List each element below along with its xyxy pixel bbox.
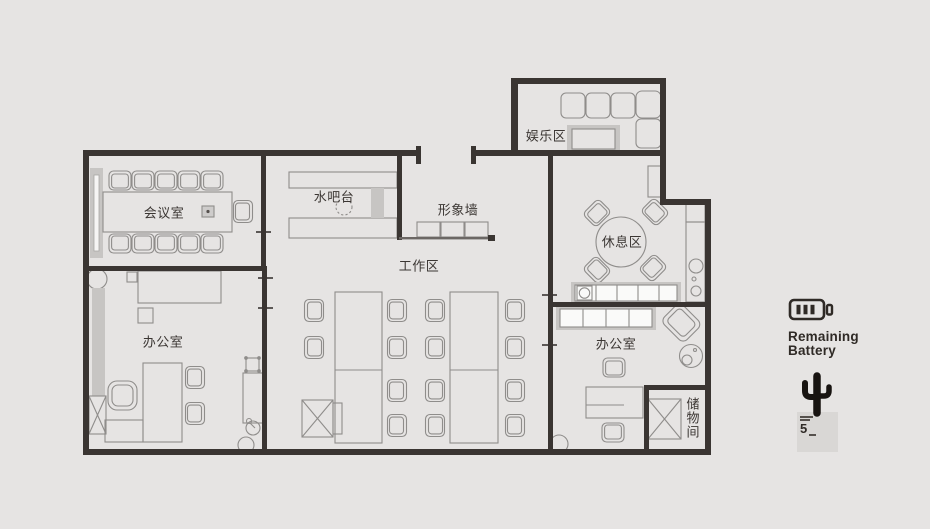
furniture-layer <box>87 91 705 453</box>
floorplan-canvas: 会议室 水吧台 形象墙 工作区 娱乐区 休息区 办公室 办公室 储物间 Rema… <box>0 0 930 529</box>
battery-label-line1: Remaining <box>788 330 859 344</box>
work-area-furniture <box>302 292 525 443</box>
office-left-furniture <box>87 269 263 453</box>
office-right-furniture <box>550 302 703 453</box>
rest-area-furniture <box>571 198 705 304</box>
room-label-entertainment-area: 娱乐区 <box>526 126 567 145</box>
room-label-image-wall: 形象墙 <box>438 200 479 219</box>
battery-label-line2: Battery <box>788 344 859 358</box>
room-label-storage-room: 储物间 <box>683 397 702 439</box>
room-label-office-left: 办公室 <box>143 332 184 351</box>
image-wall-panels <box>417 222 488 237</box>
cactus-decoration <box>796 366 840 433</box>
cactus-icon <box>796 366 840 428</box>
battery-legend: Remaining Battery <box>788 298 859 357</box>
storage-room-furniture <box>648 399 681 439</box>
battery-icon <box>788 298 836 322</box>
wall-ticks <box>256 232 557 345</box>
room-label-meeting-room: 会议室 <box>144 203 185 222</box>
stamp-fine-print <box>809 434 816 436</box>
room-label-office-right: 办公室 <box>596 334 637 353</box>
room-label-work-area: 工作区 <box>399 256 440 275</box>
room-label-rest-area: 休息区 <box>602 232 643 251</box>
room-label-water-bar: 水吧台 <box>314 187 355 206</box>
floorplan-drawing <box>0 0 930 529</box>
